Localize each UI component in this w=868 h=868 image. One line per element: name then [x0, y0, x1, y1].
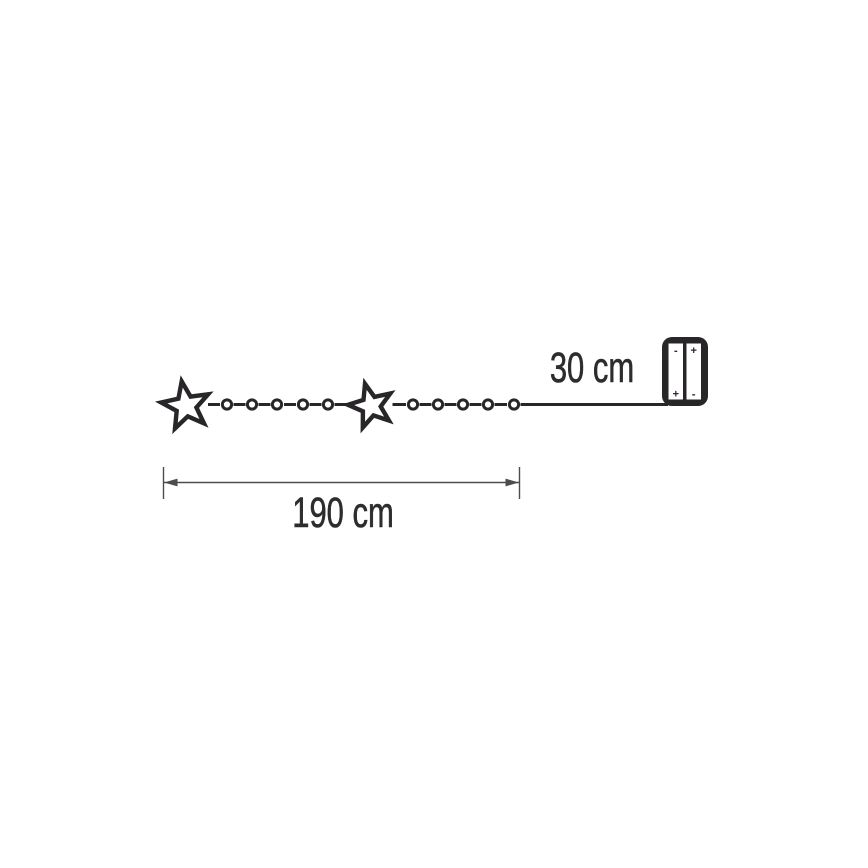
bulb [272, 400, 281, 409]
bulb [298, 400, 307, 409]
label-30cm: 30 cm [550, 347, 634, 390]
battery-left-bottom-sign: + [673, 389, 679, 401]
label-190cm: 190 cm [292, 492, 394, 535]
star-ornament-2 [348, 384, 390, 428]
diagram-canvas: - + + - 30 cm 190 cm [0, 0, 868, 868]
star-ornament-1 [161, 381, 208, 428]
bulb [483, 400, 492, 409]
battery-box: - + + - [662, 337, 708, 406]
bulb [408, 400, 417, 409]
bulb [458, 400, 467, 409]
dimension-arrow-right-icon [506, 479, 520, 487]
bulb [247, 400, 256, 409]
bulb [323, 400, 332, 409]
bulb [509, 400, 518, 409]
bulb [222, 400, 231, 409]
battery-right-bottom-sign: - [692, 389, 696, 401]
battery-left-top-sign: - [674, 345, 678, 357]
bulb [433, 400, 442, 409]
dimension-arrow-left-icon [164, 479, 178, 487]
battery-right-top-sign: + [690, 345, 696, 357]
light-chain-diagram: - + + - [0, 0, 868, 868]
